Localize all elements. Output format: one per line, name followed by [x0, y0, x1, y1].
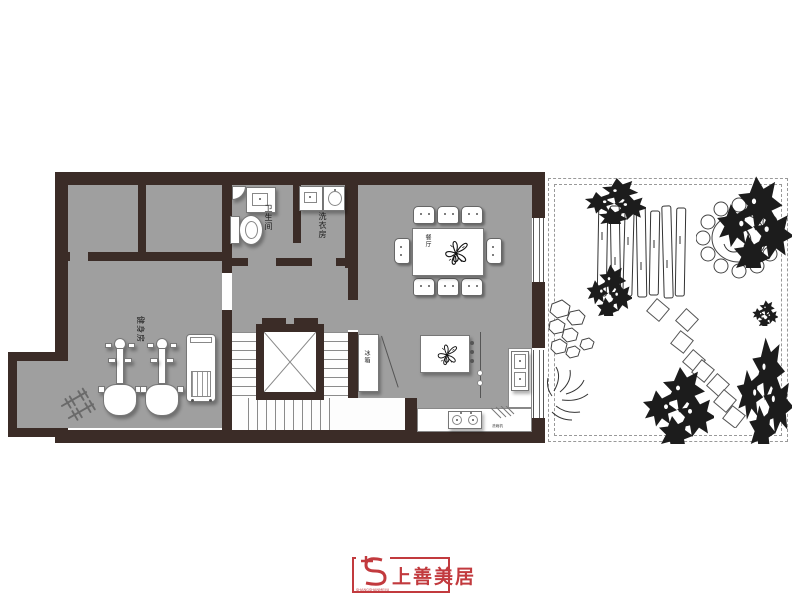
- laundry-counter: [299, 186, 323, 211]
- window: [533, 218, 544, 282]
- elevator-door-left: [262, 318, 286, 324]
- wall: [222, 310, 232, 432]
- wall-bay-bottom: [8, 428, 68, 437]
- window: [533, 350, 544, 418]
- shrub-icon: [752, 298, 778, 326]
- wall: [222, 258, 248, 266]
- island-plant-icon: [429, 336, 465, 372]
- stair-landing-left: [232, 398, 248, 432]
- dining-chair[interactable]: [461, 278, 483, 296]
- laundry-label: 洗衣房: [318, 212, 326, 239]
- dining-chair[interactable]: [461, 206, 483, 224]
- fridge-label: 冰箱: [363, 350, 369, 364]
- elevator-cab: [264, 332, 316, 392]
- toilet-seat: [245, 221, 258, 239]
- stairs-right-flight[interactable]: [322, 332, 348, 398]
- shrub-icon: [586, 260, 632, 316]
- logo-monogram-icon: [356, 553, 390, 587]
- wall-bay-left: [8, 352, 17, 437]
- dining-chair[interactable]: [437, 206, 459, 224]
- logo-brand: 上善美居: [392, 562, 476, 589]
- wall: [348, 332, 358, 398]
- dining-chair[interactable]: [413, 206, 435, 224]
- stair-landing-right: [332, 398, 348, 432]
- dishwasher-hatch: [487, 406, 515, 422]
- wall: [55, 252, 70, 261]
- dishwasher-label: 洗碗机: [492, 423, 503, 428]
- elevator-x-icon: [264, 332, 316, 392]
- bathroom-label: 卫生间: [264, 204, 272, 231]
- toilet-bowl: [239, 215, 263, 245]
- table-plant-icon: [435, 231, 477, 273]
- kitchen-door-line: [480, 332, 481, 398]
- dining-label: 餐厅: [424, 234, 430, 248]
- elevator-door-right: [294, 318, 318, 324]
- dining-table[interactable]: [412, 228, 484, 276]
- door-hinge: [477, 380, 483, 386]
- washing-machine: [323, 186, 345, 211]
- washer-drum: [328, 191, 342, 206]
- kitchen-sink[interactable]: [511, 351, 529, 391]
- shrub-icon: [736, 328, 792, 444]
- wall: [138, 185, 146, 252]
- wall: [55, 172, 68, 352]
- shrub-icon: [642, 360, 714, 444]
- hall-landing: [348, 398, 405, 432]
- dining-chair[interactable]: [413, 278, 435, 296]
- dining-chair[interactable]: [437, 278, 459, 296]
- shrub-icon: [716, 168, 792, 268]
- dining-chair[interactable]: [394, 238, 410, 264]
- floor-plan: 卫生间 洗衣房 健身房: [0, 0, 800, 600]
- logo-monogram: [356, 553, 390, 587]
- logo-subtext: SHANGSHANMEIJU: [356, 588, 389, 592]
- dining-chair[interactable]: [486, 238, 502, 264]
- wall-bay-top: [8, 352, 68, 361]
- elevator-shaft[interactable]: [256, 324, 324, 400]
- door-hinge: [477, 370, 483, 376]
- kitchen-island[interactable]: [420, 335, 470, 373]
- wall: [348, 185, 358, 300]
- wall: [532, 172, 545, 218]
- stairs-bottom-flight[interactable]: [248, 398, 332, 432]
- wall: [88, 252, 228, 261]
- stove[interactable]: [448, 411, 482, 429]
- dumbbells-icon: [55, 380, 100, 425]
- weight-machine: [98, 338, 142, 418]
- shrub-icon: [584, 174, 646, 224]
- treadmill: [186, 334, 216, 402]
- weight-machine: [140, 338, 184, 418]
- wall: [55, 172, 545, 185]
- wall: [405, 398, 417, 432]
- wall: [276, 258, 312, 266]
